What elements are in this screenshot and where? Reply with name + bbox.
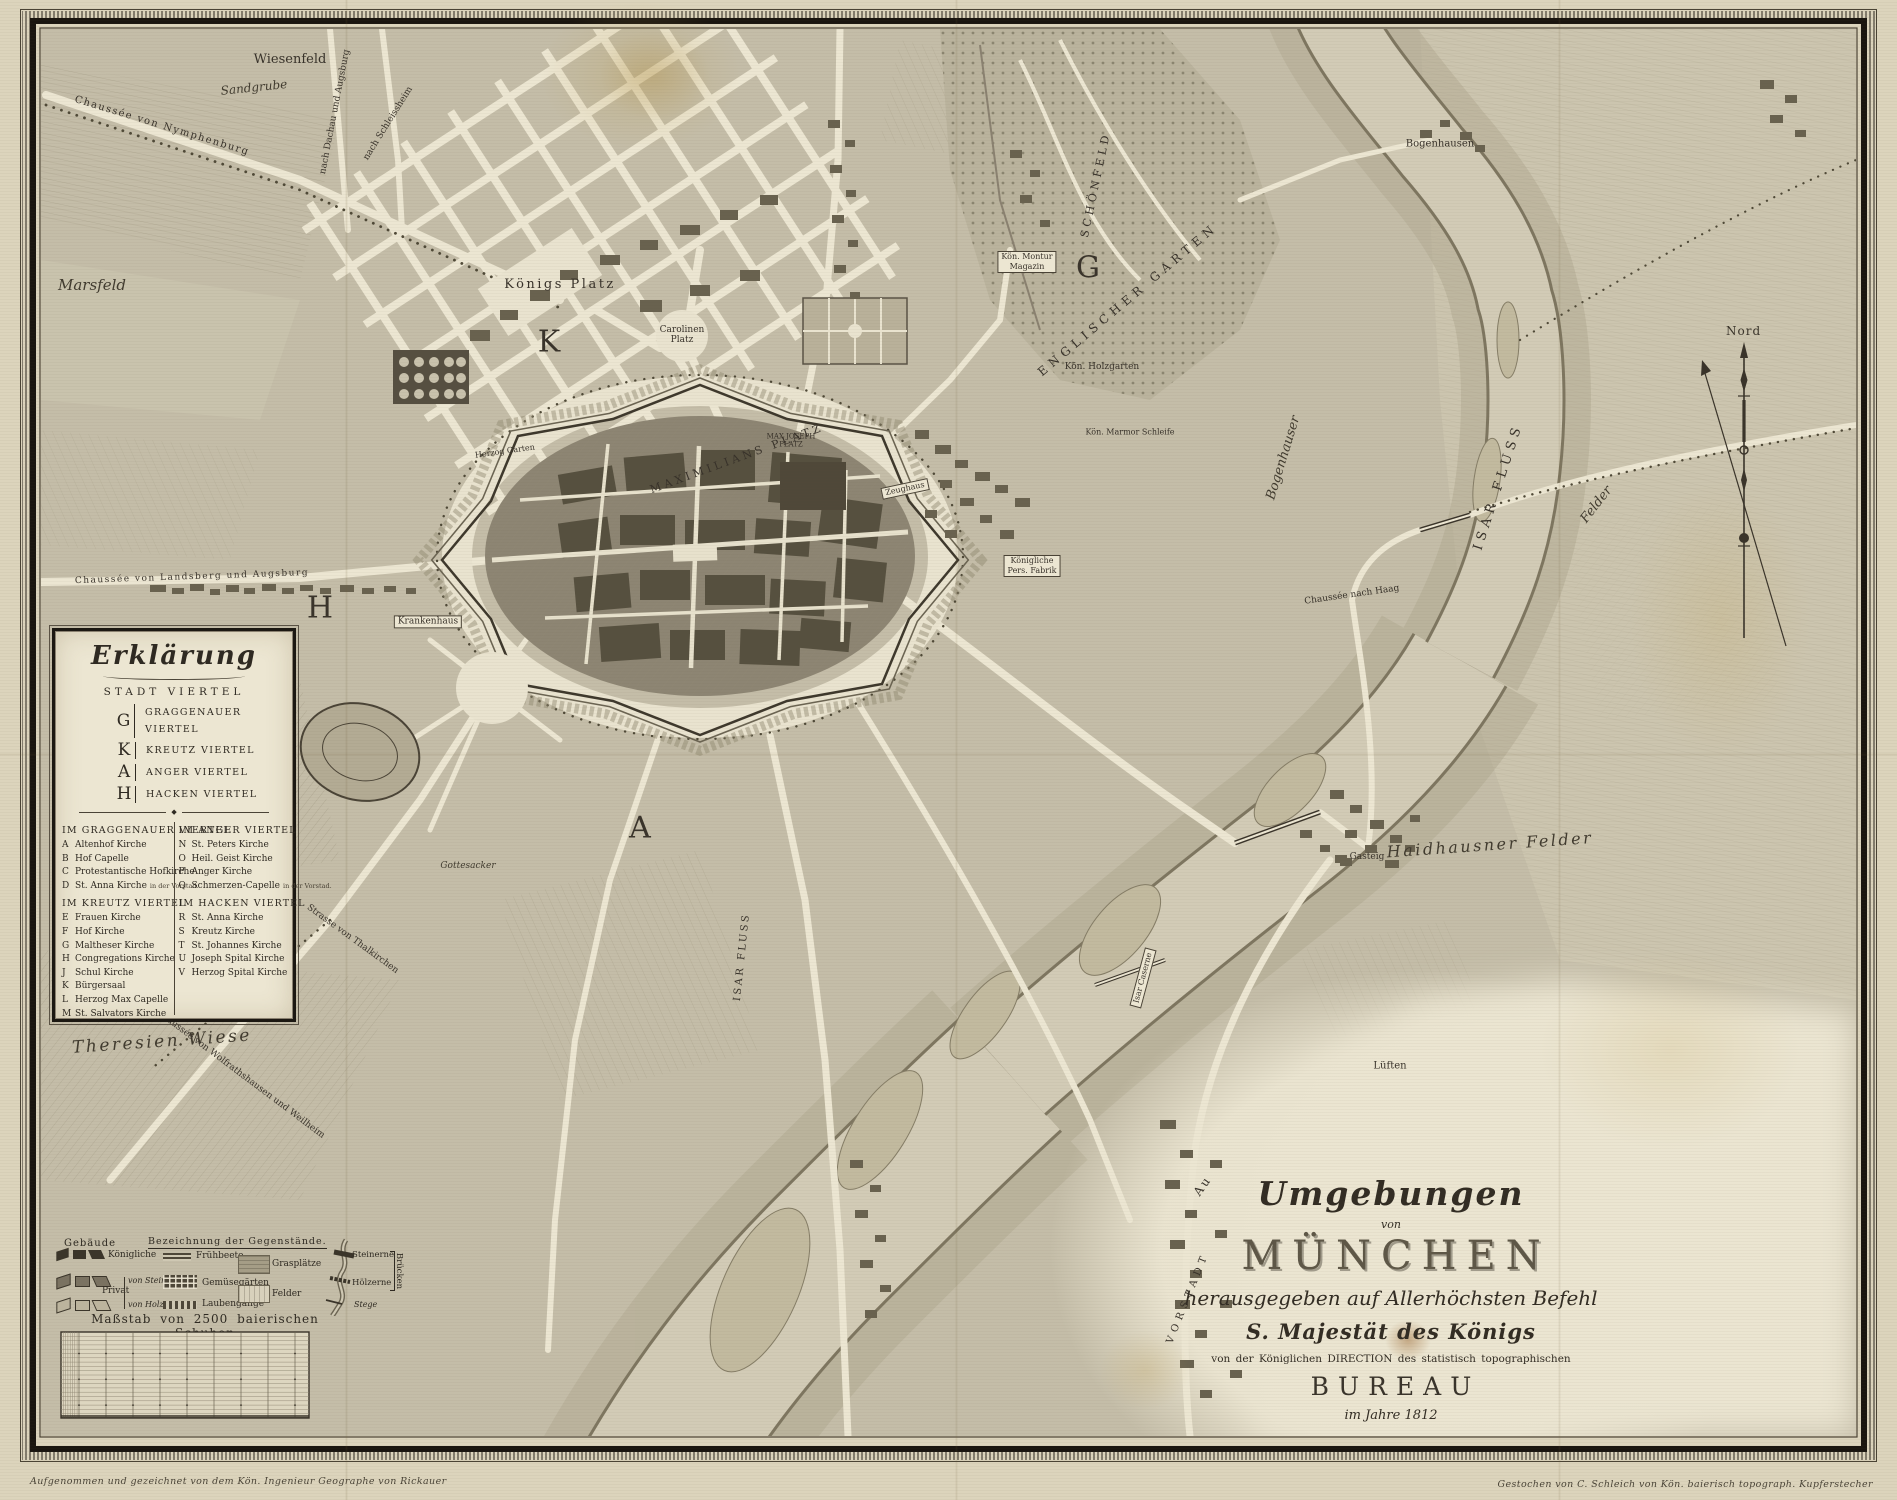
legend-item: FHof Kirche	[62, 926, 170, 940]
legend-item: PAnger Kirche	[179, 866, 287, 880]
map-label: nach Dachau und Augsburg	[319, 49, 353, 175]
legend-item: GMaltheser Kirche	[62, 940, 170, 954]
legend-item: MSt. Salvators Kirche	[62, 1008, 170, 1022]
cartouche-muenchen: MÜNCHEN	[1108, 1233, 1674, 1279]
map-label: Bogenhausen	[1406, 139, 1474, 150]
map-label: Isar Caserne	[1129, 948, 1156, 1009]
legend-flourish	[103, 672, 245, 680]
map-label: Herzog Garten	[475, 443, 536, 460]
scale-bar	[60, 1331, 310, 1423]
legend-divider: ◆	[79, 808, 269, 816]
map-label: Max JosephPlatz	[767, 433, 816, 448]
title-cartouche: Umgebungen von MÜNCHEN herausgegeben auf…	[1108, 1174, 1674, 1423]
legend-item: DSt. Anna Kirchein der Vorstad.	[62, 880, 170, 894]
map-label: Königs Platz	[504, 278, 616, 292]
map-label: Englischer Garten	[1036, 221, 1221, 379]
legend-item: CProtestantische Hofkirche	[62, 866, 170, 880]
legend-section-heading: IM KREUTZ VIERTEL	[62, 898, 170, 909]
legend-item: VHerzog Spital Kirche	[179, 967, 287, 981]
legend-quarter-row: GGRAGGENAUER VIERTEL	[113, 704, 293, 738]
map-label: CarolinenPlatz	[660, 326, 705, 346]
legend-section-heading: IM GRAGGENAUER VIERTEL	[62, 825, 170, 836]
map-label: Haidhausner Felder	[1386, 829, 1594, 861]
map-label: Krankenhaus	[394, 615, 462, 628]
legend-quarter-row: AANGER VIERTEL	[113, 762, 293, 782]
map-label: Strasse von Thalkirchen	[304, 903, 399, 976]
map-label: Gottesacker	[440, 862, 495, 872]
cartouche-von: von	[1108, 1218, 1674, 1231]
map-label: nach Schleissheim	[362, 85, 415, 162]
legend-item: AAltenhof Kirche	[62, 839, 170, 853]
compass-needle-icon	[1688, 338, 1818, 678]
map-label: Bogenhauser	[1264, 414, 1303, 501]
legend-quarter-row: KKREUTZ VIERTEL	[113, 740, 293, 760]
legend-item: OHeil. Geist Kirche	[179, 853, 287, 867]
compass: Nord	[1688, 322, 1818, 682]
map-label: Marsfeld	[58, 277, 126, 294]
legend-item: JSchul Kirche	[62, 967, 170, 981]
map-label: K	[538, 326, 560, 359]
map-label: Felder	[1578, 484, 1615, 526]
legend-section-heading: IM ANGER VIERTEL	[179, 825, 287, 836]
map-label: Chaussée nach Haag	[1304, 584, 1400, 607]
legend-item: RSt. Anna Kirche	[179, 912, 287, 926]
map-label: Sandgrube	[220, 78, 288, 98]
legend-section-heading: IM HACKEN VIERTEL	[179, 898, 287, 909]
cartouche-herausgegeben: herausgegeben auf Allerhöchsten Befehl	[1108, 1286, 1674, 1310]
map-label: Kön. Holzgarten	[1065, 363, 1139, 373]
legend-column-right: IM ANGER VIERTELNSt. Peters KircheOHeil.…	[179, 820, 287, 1021]
map-label: Kön. MonturMagazin	[997, 251, 1056, 273]
map-label: H	[307, 592, 333, 625]
map-label: KöniglichePers. Fabrik	[1004, 555, 1061, 577]
cartouche-jahr: im Jahre 1812	[1108, 1408, 1674, 1423]
cartouche-umgebungen: Umgebungen	[1108, 1174, 1674, 1213]
map-label: Chaussée von Nymphenburg	[73, 94, 250, 158]
map-label: Kön. Marmor Schleife	[1085, 429, 1174, 438]
legend-item: HCongregations Kirche	[62, 953, 170, 967]
legend-title: Erklärung	[55, 641, 293, 671]
legend-item: UJoseph Spital Kirche	[179, 953, 287, 967]
legend-item: TSt. Johannes Kirche	[179, 940, 287, 954]
map-label: Zeughaus	[880, 478, 929, 500]
legend-erklaerung: Erklärung STADT VIERTEL GGRAGGENAUER VIE…	[52, 628, 296, 1022]
legend-columns: IM GRAGGENAUER VIERTELAAltenhof KircheBH…	[55, 820, 293, 1021]
compass-north-label: Nord	[1726, 324, 1761, 338]
map-label: Wiesenfeld	[254, 53, 327, 67]
legend-subtitle: STADT VIERTEL	[55, 686, 293, 698]
cartouche-bureau: BUREAU	[1108, 1372, 1674, 1401]
map-label: Theresien Wiese	[72, 1026, 253, 1057]
map-sheet: WiesenfeldSandgrubeChaussée von Nymphenb…	[0, 0, 1897, 1500]
legend-item: SKreutz Kirche	[179, 926, 287, 940]
legend-item: NSt. Peters Kirche	[179, 839, 287, 853]
legend-quarters: GGRAGGENAUER VIERTELKKREUTZ VIERTELAANGE…	[55, 704, 293, 804]
legend-column-left: IM GRAGGENAUER VIERTELAAltenhof KircheBH…	[62, 820, 170, 1021]
legend-column-rule	[174, 822, 175, 1015]
map-label: Isar Fluss	[732, 912, 752, 1001]
map-label: A	[629, 812, 651, 845]
legend-item: KBürgersaal	[62, 980, 170, 994]
legend-item: QSchmerzen-Capellein der Vorstad.	[179, 880, 287, 894]
map-label: Chaussée von Landsberg und Augsburg	[75, 569, 310, 587]
map-label: Lüften	[1373, 1061, 1406, 1072]
map-label: Isar Fluss	[1472, 422, 1527, 553]
map-label: Gasteig	[1350, 853, 1385, 863]
map-label: Schönfeld	[1079, 131, 1113, 239]
cartouche-majestaet: S. Majestät des Königs	[1108, 1319, 1674, 1344]
legend-item: BHof Capelle	[62, 853, 170, 867]
legend-quarter-row: HHACKEN VIERTEL	[113, 784, 293, 804]
cartouche-direction: von der Königlichen DIRECTION des statis…	[1108, 1353, 1674, 1365]
divider-ornament-icon: ◆	[166, 808, 181, 816]
legend-item: LHerzog Max Capelle	[62, 994, 170, 1008]
legend-item: EFrauen Kirche	[62, 912, 170, 926]
map-label: G	[1076, 252, 1100, 285]
